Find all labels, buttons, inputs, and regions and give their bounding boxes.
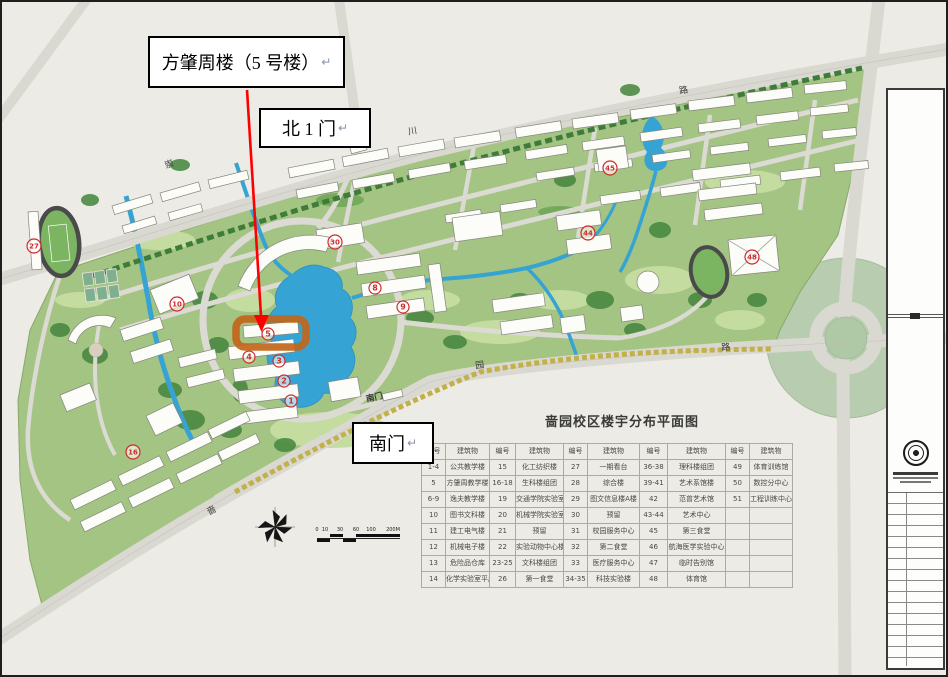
legend-building-cell: 艺术系馆楼 (668, 476, 726, 492)
marker-number: 30 (330, 239, 340, 247)
title-block-divider (888, 314, 943, 318)
legend-building-cell (750, 524, 793, 540)
legend-building-cell: 一期看台 (588, 460, 640, 476)
legend-header-cell: 建筑物 (668, 444, 726, 460)
legend-building-cell: 交通学院实验室 (516, 492, 564, 508)
legend-number-cell: 6-9 (422, 492, 446, 508)
scale-label: 0 (315, 527, 318, 533)
legend-number-cell: 13 (422, 556, 446, 572)
legend-number-cell: 14 (422, 572, 446, 588)
marker-number: 1 (288, 397, 294, 406)
scale-label: 200M (386, 527, 400, 533)
paragraph-mark: ↵ (407, 436, 417, 450)
legend-building-cell: 图文信息楼A楼 (588, 492, 640, 508)
legend-building-cell: 机械电子楼 (446, 540, 490, 556)
marker-number: 5 (265, 330, 271, 339)
marker-number: 16 (128, 449, 138, 457)
legend-header-cell: 编号 (564, 444, 588, 460)
legend-building-cell: 文科楼组团 (516, 556, 564, 572)
legend-building-cell: 范曾艺术馆 (668, 492, 726, 508)
legend-number-cell: 39-41 (640, 476, 668, 492)
marker-number: 27 (29, 243, 39, 251)
university-seal-icon (903, 440, 929, 466)
legend-number-cell: 45 (640, 524, 668, 540)
legend-building-cell: 危险品仓库 (446, 556, 490, 572)
legend-building-cell: 图书文科楼 (446, 508, 490, 524)
legend-number-cell: 34-35 (564, 572, 588, 588)
legend-number-cell: 30 (564, 508, 588, 524)
legend-building-cell: 化工纺织楼 (516, 460, 564, 476)
legend-number-cell: 23-25 (490, 556, 516, 572)
marker-number: 10 (172, 301, 182, 309)
legend-number-cell: 19 (490, 492, 516, 508)
legend-building-cell: 科技实验楼 (588, 572, 640, 588)
south-gate-callout: 南门 ↵ (352, 422, 434, 464)
legend-number-cell: 15 (490, 460, 516, 476)
legend-number-cell: 22 (490, 540, 516, 556)
legend-header-cell: 编号 (640, 444, 668, 460)
building-5-callout-text: 方肇周楼（5 号楼） (162, 49, 320, 75)
legend-row: 6-9逸夫教学楼19交通学院实验室29图文信息楼A楼42范曾艺术馆51工程训练中… (422, 492, 793, 508)
legend-building-cell: 预留 (588, 508, 640, 524)
legend-building-cell: 第一食堂 (516, 572, 564, 588)
legend-building-cell: 预留 (516, 524, 564, 540)
legend-header-cell: 建筑物 (516, 444, 564, 460)
legend-number-cell: 5 (422, 476, 446, 492)
legend-number-cell: 29 (564, 492, 588, 508)
legend-building-cell (750, 572, 793, 588)
legend-number-cell: 42 (640, 492, 668, 508)
legend-building-cell: 化学实验室平房 (446, 572, 490, 588)
legend-header-cell: 编号 (726, 444, 750, 460)
legend-building-cell: 体育馆 (668, 572, 726, 588)
legend-number-cell: 33 (564, 556, 588, 572)
legend-building-cell: 校园服务中心 (588, 524, 640, 540)
building-5-callout: 方肇周楼（5 号楼） ↵ (148, 36, 345, 88)
legend-number-cell: 46 (640, 540, 668, 556)
north-gate-1-callout: 北 1 门 ↵ (259, 108, 371, 148)
legend-building-cell: 实验动物中心楼 (516, 540, 564, 556)
legend-row: 13危险品仓库23-25文科楼组团33医疗服务中心47临时告别馆 (422, 556, 793, 572)
building-index-table: 编号建筑物编号建筑物编号建筑物编号建筑物编号建筑物1-4公共教学楼15化工纺织楼… (421, 443, 793, 588)
legend-row: 11建工电气楼21预留31校园服务中心45第三食堂 (422, 524, 793, 540)
legend-building-cell: 第二食堂 (588, 540, 640, 556)
marker-number: 44 (583, 230, 593, 238)
legend-number-cell: 26 (490, 572, 516, 588)
legend-building-cell: 逸夫教学楼 (446, 492, 490, 508)
legend-title: 啬园校区楼宇分布平面图 (545, 411, 792, 430)
legend-number-cell: 43-44 (640, 508, 668, 524)
legend-number-cell: 10 (422, 508, 446, 524)
marker-number: 4 (246, 353, 252, 362)
legend-row: 10图书文科楼20机械学院实验室30预留43-44艺术中心 (422, 508, 793, 524)
scale-label: 30 (337, 527, 343, 533)
legend-header-cell: 建筑物 (750, 444, 793, 460)
legend-building-cell: 综合楼 (588, 476, 640, 492)
legend-building-cell: 工程训练中心 (750, 492, 793, 508)
legend-header-cell: 建筑物 (446, 444, 490, 460)
legend-number-cell (726, 572, 750, 588)
road-label: 川 (407, 126, 418, 137)
legend-building-cell: 临时告别馆 (668, 556, 726, 572)
paragraph-mark: ↵ (338, 121, 348, 135)
legend-number-cell: 48 (640, 572, 668, 588)
scale-label: 100 (366, 527, 376, 533)
road-label: 园 (475, 360, 485, 372)
road-label: 路 (721, 341, 731, 354)
legend-number-cell: 28 (564, 476, 588, 492)
legend-row: 14化学实验室平房26第一食堂34-35科技实验楼48体育馆 (422, 572, 793, 588)
legend-number-cell: 47 (640, 556, 668, 572)
legend-number-cell (726, 524, 750, 540)
paragraph-mark: ↵ (321, 55, 331, 69)
legend-number-cell: 12 (422, 540, 446, 556)
legend-row: 12机械电子楼22实验动物中心楼32第二食堂46航海医学实验中心 (422, 540, 793, 556)
legend-building-cell (750, 556, 793, 572)
scale-label: 60 (353, 527, 359, 533)
marker-number: 3 (276, 357, 282, 366)
legend-number-cell: 20 (490, 508, 516, 524)
legend-building-cell: 建工电气楼 (446, 524, 490, 540)
legend-number-cell: 16-18 (490, 476, 516, 492)
legend-number-cell (726, 556, 750, 572)
legend-building-cell: 生科楼组团 (516, 476, 564, 492)
marker-number: 2 (281, 377, 287, 386)
legend-header-cell: 建筑物 (588, 444, 640, 460)
campus-map-document: 271030543218944454816 崇川路啬园路南门 010306010… (0, 0, 948, 677)
legend-building-cell (750, 540, 793, 556)
legend-building-cell: 航海医学实验中心 (668, 540, 726, 556)
legend-number-cell: 11 (422, 524, 446, 540)
legend-building-cell: 方肇周教学楼 (446, 476, 490, 492)
scale-label: 10 (322, 527, 328, 533)
legend-number-cell: 27 (564, 460, 588, 476)
legend-number-cell: 50 (726, 476, 750, 492)
drawing-title-block (886, 88, 945, 670)
north-gate-1-callout-text: 北 1 门 (282, 115, 336, 141)
marker-number: 9 (400, 303, 406, 312)
legend-building-cell: 体育训练馆 (750, 460, 793, 476)
legend-number-cell: 21 (490, 524, 516, 540)
south-gate-callout-text: 南门 (369, 430, 405, 456)
legend-building-cell: 公共教学楼 (446, 460, 490, 476)
legend-building-cell: 机械学院实验室 (516, 508, 564, 524)
legend-number-cell: 32 (564, 540, 588, 556)
legend-number-cell: 36-38 (640, 460, 668, 476)
title-block-text-lines (893, 472, 938, 485)
legend-building-cell: 第三食堂 (668, 524, 726, 540)
legend-number-cell: 51 (726, 492, 750, 508)
legend-building-cell: 数控分中心 (750, 476, 793, 492)
legend-row: 1-4公共教学楼15化工纺织楼27一期看台36-38理科楼组团49体育训练馆 (422, 460, 793, 476)
legend-building-cell: 艺术中心 (668, 508, 726, 524)
marker-number: 48 (747, 254, 757, 262)
legend-building-cell (750, 508, 793, 524)
marker-number: 45 (605, 165, 615, 173)
title-block-grid (888, 492, 943, 666)
marker-number: 8 (372, 284, 378, 293)
legend-number-cell (726, 508, 750, 524)
legend-building-cell: 医疗服务中心 (588, 556, 640, 572)
legend-row: 5方肇周教学楼16-18生科楼组团28综合楼39-41艺术系馆楼50数控分中心 (422, 476, 793, 492)
legend-header-cell: 编号 (490, 444, 516, 460)
legend-number-cell (726, 540, 750, 556)
legend-table: 啬园校区楼宇分布平面图 编号建筑物编号建筑物编号建筑物编号建筑物编号建筑物1-4… (421, 411, 792, 588)
legend-number-cell: 49 (726, 460, 750, 476)
legend-building-cell: 理科楼组团 (668, 460, 726, 476)
legend-number-cell: 31 (564, 524, 588, 540)
